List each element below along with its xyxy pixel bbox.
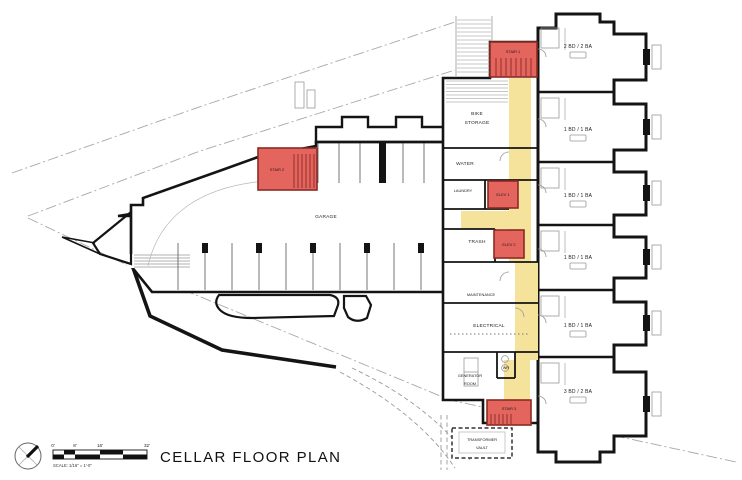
scale-tick-0: 0'	[51, 443, 55, 448]
bike-racks	[446, 81, 508, 102]
unit-1-label: 2 BD / 2 BA	[564, 44, 593, 50]
floor-plan-sheet: GARAGE	[0, 0, 742, 480]
garage-label: GARAGE	[315, 214, 337, 220]
stair-2: STAIR 2	[258, 148, 317, 190]
plan-title: CELLAR FLOOR PLAN	[160, 449, 341, 466]
scale-tick-8: 8'	[73, 443, 77, 448]
existing-structure-outline	[295, 82, 315, 108]
scale-note: SCALE: 1/16" = 1'-0"	[53, 463, 92, 468]
stair-3: STAIR 3	[487, 400, 531, 425]
stair-1: STAIR 1	[490, 42, 537, 77]
cellar-floor-plan-drawing: GARAGE	[0, 0, 742, 480]
title-block: 0' 8' 16' 32' SCALE: 1/16" = 1'-0" CELLA…	[15, 443, 341, 469]
unit-5-label: 1 BD / 1 BA	[564, 323, 593, 329]
elevator-2: ELEV 2	[494, 230, 524, 258]
stair-2-label: STAIR 2	[270, 167, 284, 172]
maintenance-label: MAINTENANCE	[467, 292, 496, 297]
hatched-wall-band	[316, 117, 448, 142]
wr-label: WR	[503, 365, 510, 370]
hatched-planter-islands	[216, 295, 371, 321]
window-wells	[652, 45, 661, 416]
north-arrow-icon	[15, 443, 41, 469]
scale-tick-16: 16'	[97, 443, 103, 448]
scale-tick-32: 32'	[144, 443, 150, 448]
elevator-1: ELEV 1	[488, 181, 518, 208]
bike-storage-label-1: BIKE	[471, 111, 483, 117]
scale-bar: 0' 8' 16' 32' SCALE: 1/16" = 1'-0"	[51, 443, 150, 468]
transformer-vault-label-2: VAULT	[476, 445, 489, 450]
electrical-label: ELECTRICAL	[473, 323, 505, 329]
generator-room-label-1: GENERATOR	[458, 373, 482, 378]
unit-3-label: 1 BD / 1 BA	[564, 193, 593, 199]
unit-6-label: 3 BD / 2 BA	[564, 389, 593, 395]
water-label: WATER	[456, 161, 474, 167]
west-wedge-planter	[93, 212, 131, 264]
trash-label: TRASH	[468, 239, 486, 245]
unit-4-label: 1 BD / 1 BA	[564, 255, 593, 261]
unit-2-label: 1 BD / 1 BA	[564, 127, 593, 133]
transformer-vault: TRANSFORMER VAULT	[452, 428, 512, 458]
generator-room-label-2: ROOM	[464, 381, 476, 386]
residential-wing	[538, 14, 661, 462]
stair-1-label: STAIR 1	[506, 49, 520, 54]
exterior-stair	[456, 16, 492, 76]
laundry-label: LAUNDRY	[454, 188, 473, 193]
bike-storage-label-2: STORAGE	[465, 120, 490, 126]
elev-2-label: ELEV 2	[502, 242, 515, 247]
elev-1-label: ELEV 1	[496, 192, 509, 197]
transformer-vault-label-1: TRANSFORMER	[467, 437, 497, 442]
stair-3-label: STAIR 3	[502, 406, 516, 411]
